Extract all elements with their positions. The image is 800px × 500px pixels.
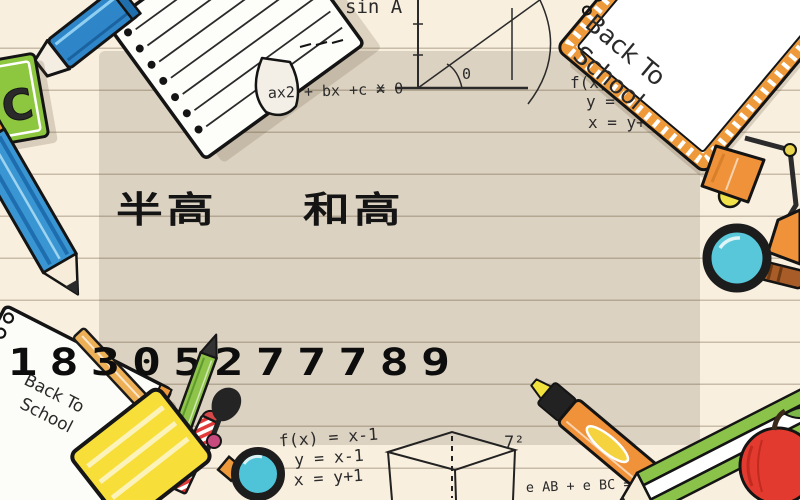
magnifier-bottom-icon <box>218 451 281 497</box>
back-to-school-banner: C sin A 0 x ax2 + bx +c = 0 <box>0 0 800 500</box>
doodles-front-layer <box>0 0 800 500</box>
